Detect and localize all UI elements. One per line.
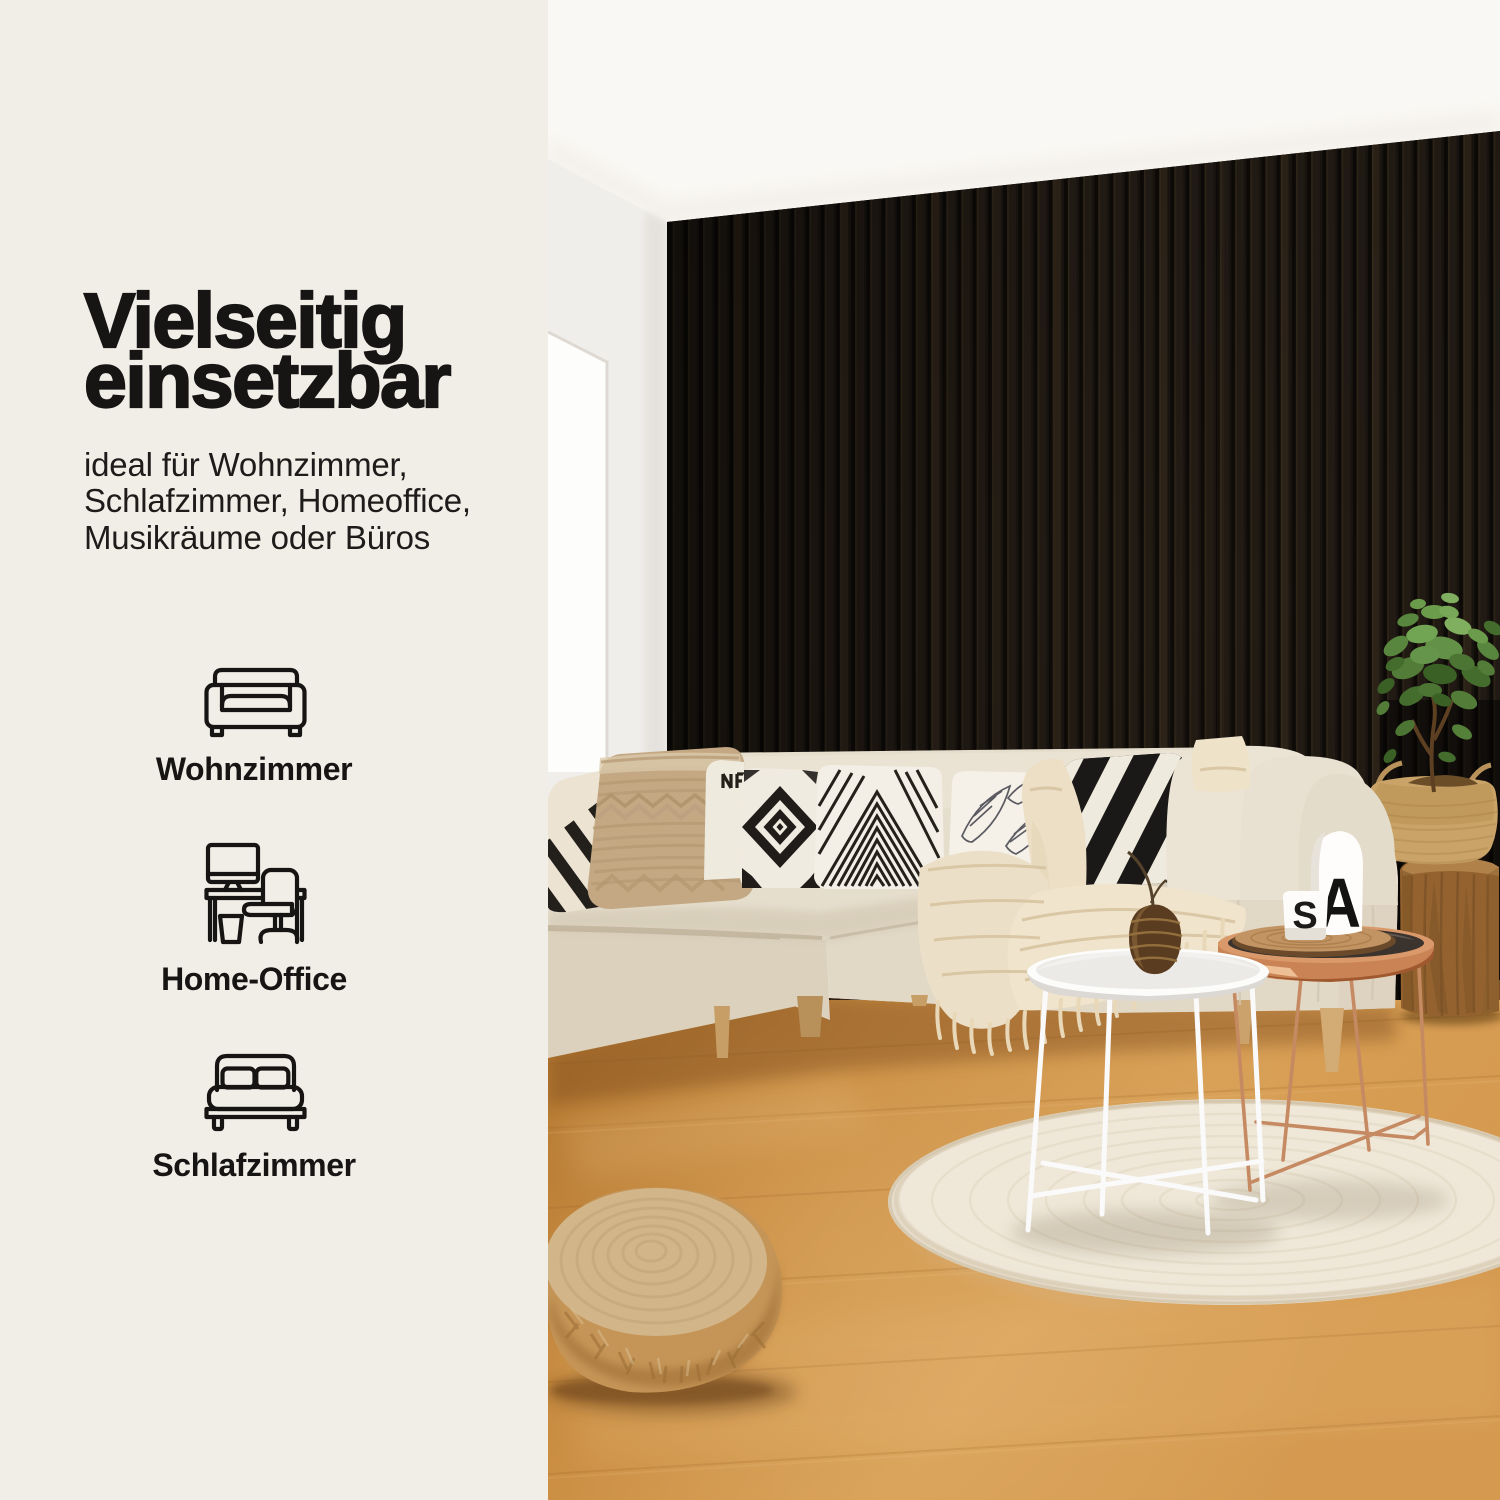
svg-text:S: S xyxy=(1292,895,1317,937)
